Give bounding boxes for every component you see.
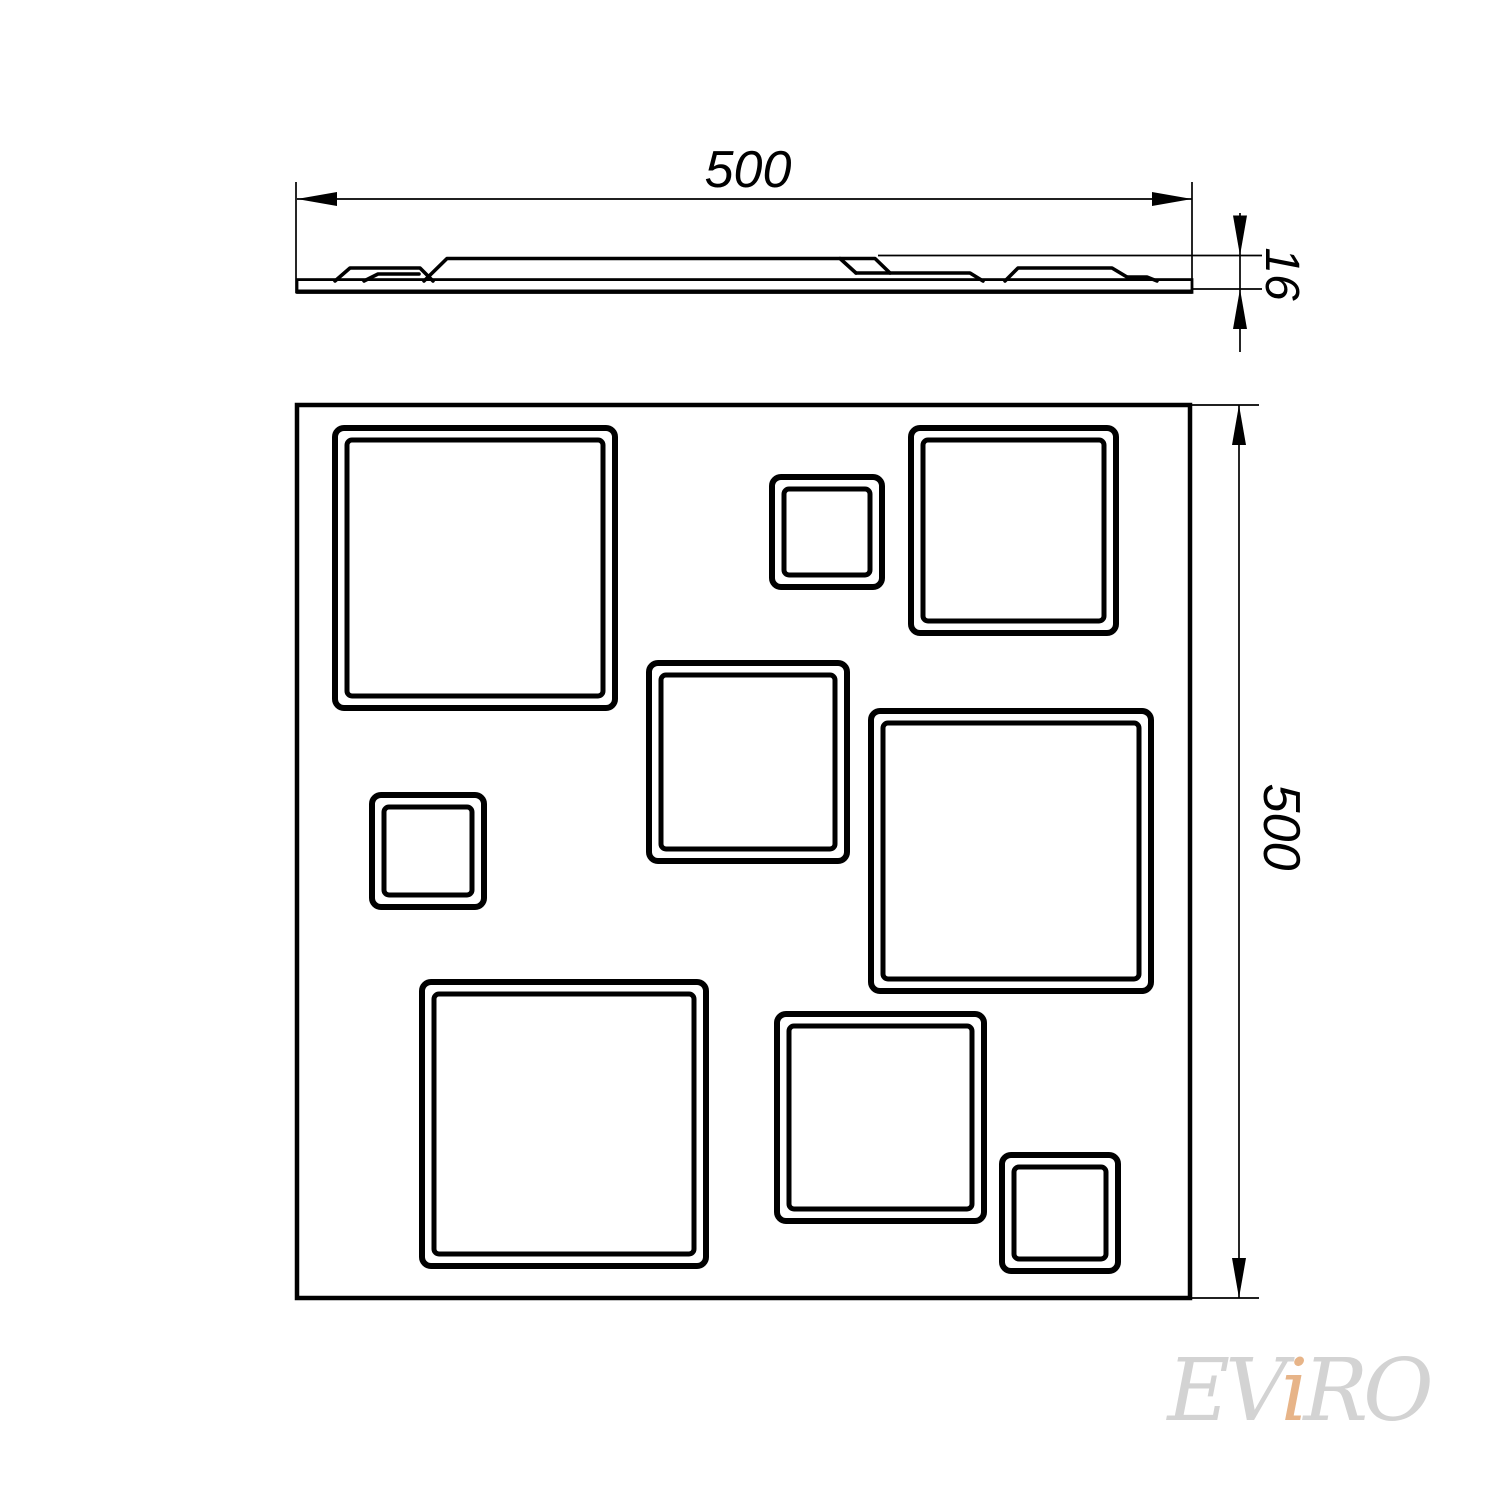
relief-square-outer-bottom-center-medium	[777, 1014, 984, 1221]
watermark-logo: EViRO	[1128, 1336, 1468, 1456]
dimension-arrowhead	[297, 192, 337, 206]
relief-square-outer-bottom-left-large	[422, 982, 706, 1266]
relief-square-inner-top-left-large	[347, 440, 603, 696]
relief-square-outer-top-left-large	[335, 428, 615, 708]
relief-square-inner-top-center-small	[784, 489, 870, 575]
relief-square-outer-middle-left-small	[372, 795, 484, 907]
dimension-arrowhead	[1232, 1258, 1246, 1298]
relief-square-outer-bottom-right-small	[1002, 1155, 1118, 1271]
profile-relief-bump	[424, 259, 856, 282]
relief-square-outer-top-center-small	[772, 477, 882, 587]
relief-square-inner-top-right-medium	[923, 440, 1104, 621]
watermark-text-left: EV	[1167, 1341, 1280, 1441]
relief-square-inner-bottom-right-small	[1014, 1167, 1106, 1259]
profile-view	[297, 259, 1192, 293]
dim-width-label: 500	[705, 141, 792, 199]
watermark-text-right: RO	[1303, 1341, 1428, 1441]
drawing-canvas: 500 16 500 EViRO	[0, 0, 1500, 1500]
relief-square-outer-top-right-medium	[911, 428, 1116, 633]
dim-height-label: 500	[1252, 784, 1310, 871]
relief-square-outer-center-medium	[649, 663, 847, 861]
relief-square-inner-bottom-left-large	[434, 994, 694, 1254]
relief-square-inner-middle-left-small	[384, 807, 472, 895]
relief-square-inner-right-large	[883, 723, 1139, 979]
technical-drawing: 500 16 500	[0, 0, 1500, 1500]
relief-square-inner-bottom-center-medium	[789, 1026, 972, 1209]
dim-thickness-label: 16	[1255, 247, 1308, 301]
dimension-arrowhead	[1152, 192, 1192, 206]
relief-square-outer-right-large	[871, 711, 1151, 991]
dimension-arrowhead	[1232, 405, 1246, 445]
relief-square-inner-center-medium	[661, 675, 835, 849]
plan-view	[297, 405, 1190, 1298]
dimension-arrowhead	[1233, 216, 1247, 256]
watermark-accent-letter: i	[1281, 1341, 1304, 1441]
dimension-arrowhead	[1233, 289, 1247, 329]
